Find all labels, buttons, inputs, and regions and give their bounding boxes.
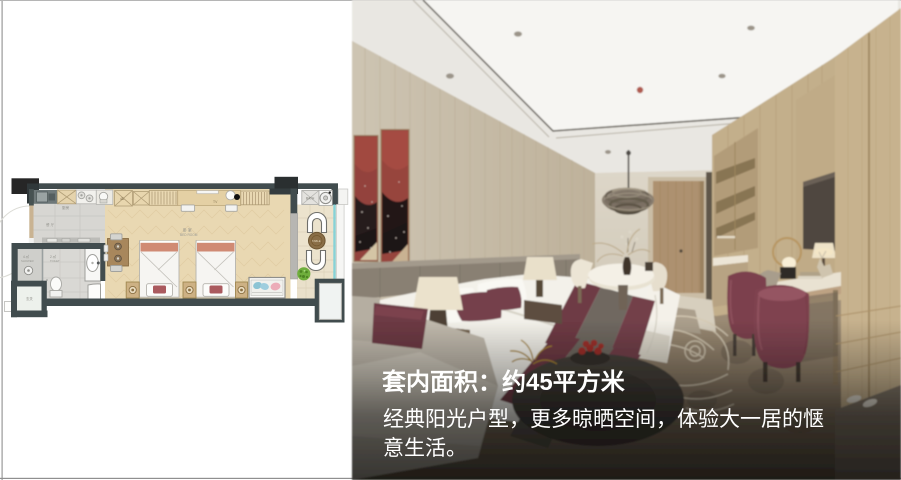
svg-text:玄关: 玄关 [26, 296, 33, 301]
svg-text:BATH: BATH [306, 197, 315, 201]
svg-text:SHOWER: SHOWER [21, 259, 34, 263]
svg-text:BED ROOM: BED ROOM [180, 233, 198, 237]
svg-text:4D: 4D [120, 197, 125, 201]
svg-text:经典阳光户型，更多晾晒空间，体验大一居的惬: 经典阳光户型，更多晾晒空间，体验大一居的惬 [383, 408, 824, 431]
svg-text:套内面积：约45平方米: 套内面积：约45平方米 [382, 368, 625, 396]
svg-text:TOILET: TOILET [50, 259, 60, 263]
svg-text:卧 室: 卧 室 [183, 228, 192, 233]
svg-text:TABLE: TABLE [312, 239, 321, 243]
svg-text:意生活。: 意生活。 [383, 437, 467, 460]
svg-text:TV: TV [213, 200, 218, 204]
svg-text:厨房: 厨房 [62, 205, 70, 210]
svg-text:餐 厅: 餐 厅 [46, 222, 55, 227]
